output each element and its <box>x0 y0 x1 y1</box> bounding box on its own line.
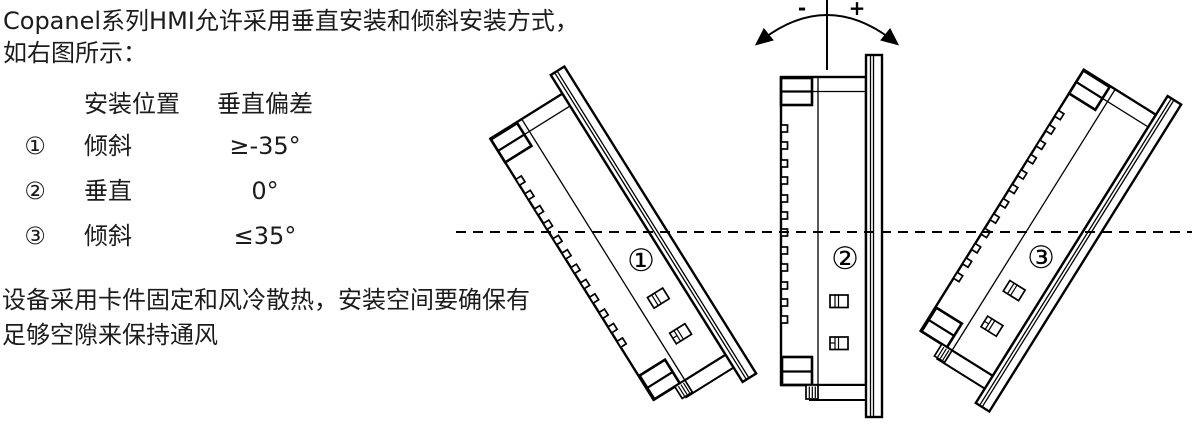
installation-diagram: - + ① ② ③ <box>0 0 1192 424</box>
device-label-2: ② <box>831 241 859 277</box>
hmi-side-view-tilt-left <box>479 66 756 424</box>
hmi-side-view-vertical <box>781 55 882 417</box>
device-label-1: ① <box>627 243 655 279</box>
device-label-3: ③ <box>1027 240 1055 276</box>
plus-direction-label: + <box>849 0 866 20</box>
minus-direction-label: - <box>798 0 806 20</box>
